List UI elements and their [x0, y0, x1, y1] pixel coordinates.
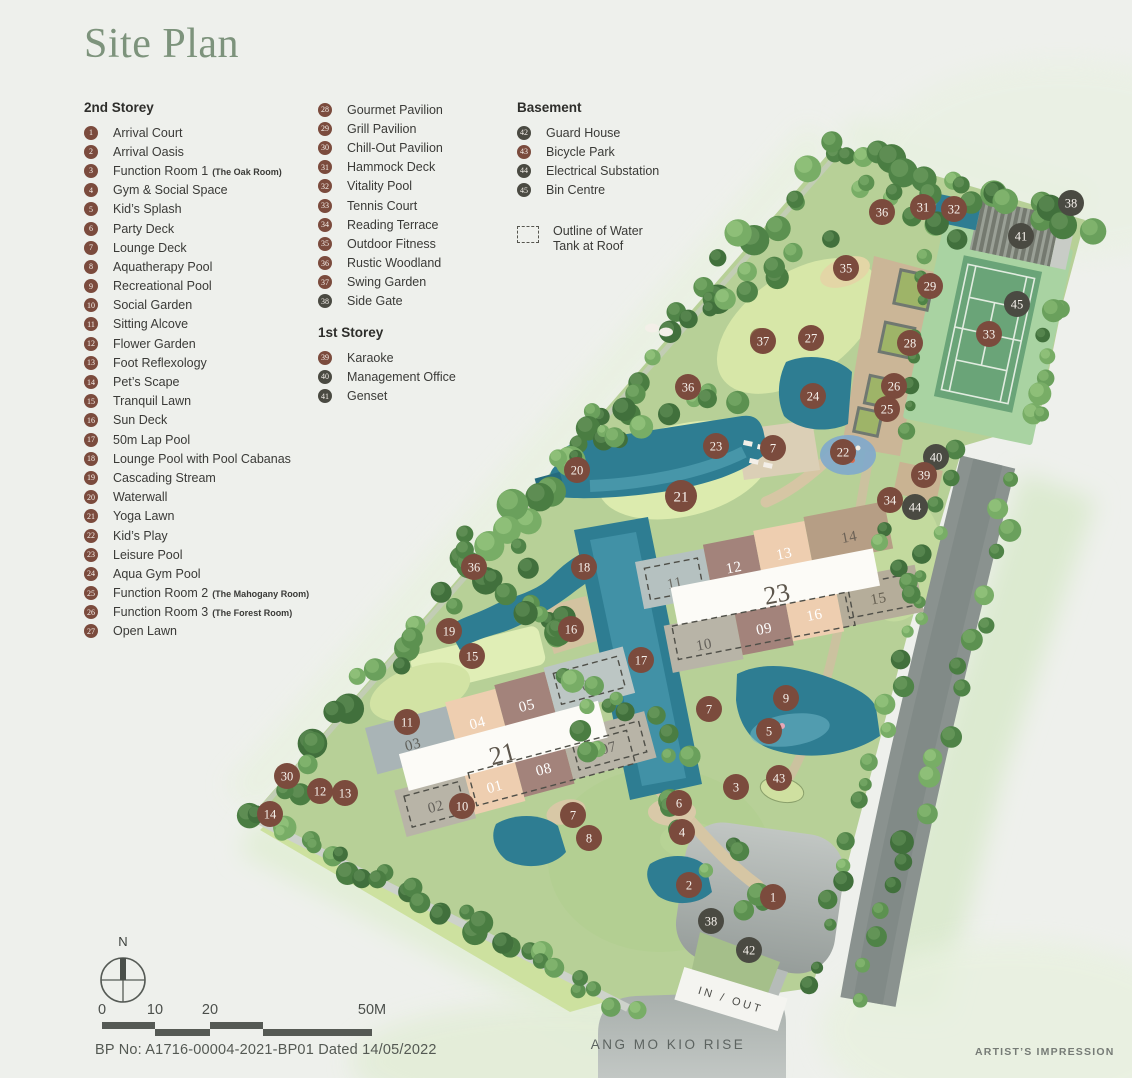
map-marker-number: 26	[888, 379, 901, 393]
map-marker-number: 12	[314, 784, 327, 798]
legend-item: 9 Recreational Pool	[84, 277, 309, 296]
stack-number: 10	[695, 636, 714, 655]
map-marker-number: 2	[686, 878, 692, 892]
legend-item: 36 Rustic Woodland	[318, 254, 456, 273]
legend-item: 30 Chill-Out Pavilion	[318, 138, 456, 157]
legend-item-label: Function Room 1(The Oak Room)	[113, 164, 282, 178]
stack-number: 16	[805, 606, 824, 625]
map-marker-number: 6	[676, 796, 682, 810]
legend-item-label: Sun Deck	[113, 413, 167, 427]
map-marker-number: 29	[924, 279, 937, 293]
legend-item-number: 10	[84, 298, 98, 312]
legend-item-label: Leisure Pool	[113, 548, 183, 562]
legend-column-1: 2nd Storey 1 Arrival Court 2 Arrival Oas…	[84, 100, 309, 641]
legend-item-number: 42	[517, 126, 531, 140]
legend-item-label: Karaoke	[347, 351, 394, 365]
map-marker-number: 13	[339, 786, 352, 800]
legend-item-label: Tennis Court	[347, 199, 417, 213]
map-marker-number: 39	[918, 468, 931, 482]
map-marker-number: 42	[743, 943, 756, 957]
map-marker-number: 38	[1065, 196, 1078, 210]
map-marker-number: 30	[281, 769, 294, 783]
water-tank-note: Outline of WaterTank at Roof	[517, 224, 659, 254]
legend-item: 8 Aquatherapy Pool	[84, 257, 309, 276]
legend-item-number: 12	[84, 337, 98, 351]
legend-item-label: Lounge Deck	[113, 241, 187, 255]
legend-item: 26 Function Room 3(The Forest Room)	[84, 603, 309, 622]
map-marker-number: 20	[571, 463, 584, 477]
legend-item-label: Gourmet Pavilion	[347, 103, 443, 117]
map-marker-number: 7	[706, 702, 712, 716]
legend-item-number: 23	[84, 548, 98, 562]
scale-label: 10	[147, 1002, 163, 1018]
legend-item: 12 Flower Garden	[84, 334, 309, 353]
legend-item-number: 6	[84, 222, 98, 236]
legend-item-number: 3	[84, 164, 98, 178]
legend-heading: Basement	[517, 100, 659, 115]
legend-item-number: 27	[84, 624, 98, 638]
legend-item-number: 38	[318, 294, 332, 308]
artists-impression-note: ARTIST’S IMPRESSION	[975, 1046, 1114, 1058]
map-marker-number: 41	[1015, 229, 1028, 243]
bp-number: BP No: A1716-00004-2021-BP01 Dated 14/05…	[95, 1042, 437, 1058]
legend-item-number: 14	[84, 375, 98, 389]
legend-item-label: Management Office	[347, 370, 456, 384]
legend-item-label: Arrival Oasis	[113, 145, 184, 159]
legend-item-number: 9	[84, 279, 98, 293]
scale-label: 50M	[358, 1002, 386, 1018]
legend-item: 23 Leisure Pool	[84, 545, 309, 564]
legend-item: 40 Management Office	[318, 367, 456, 386]
legend-item-number: 19	[84, 471, 98, 485]
legend-item-label: Hammock Deck	[347, 160, 435, 174]
legend-item: 18 Lounge Pool with Pool Cabanas	[84, 449, 309, 468]
legend-item: 11 Sitting Alcove	[84, 315, 309, 334]
legend-item: 44 Electrical Substation	[517, 161, 659, 180]
map-marker-number: 15	[466, 649, 479, 663]
map-marker-number: 21	[674, 489, 689, 505]
legend-item-label: Rustic Woodland	[347, 256, 441, 270]
map-marker-number: 22	[837, 445, 850, 459]
legend-list: 39 Karaoke 40 Management Office 41 Gense…	[318, 348, 456, 406]
stack-number: 13	[775, 545, 794, 564]
legend-item-label: Lounge Pool with Pool Cabanas	[113, 452, 291, 466]
dashed-outline-swatch	[517, 226, 539, 243]
legend-item: 7 Lounge Deck	[84, 238, 309, 257]
legend-item-number: 5	[84, 202, 98, 216]
legend-item: 37 Swing Garden	[318, 273, 456, 292]
legend-item-number: 43	[517, 145, 531, 159]
legend-item-label: Recreational Pool	[113, 279, 212, 293]
legend-item-label: Electrical Substation	[546, 164, 659, 178]
legend-item-label: Function Room 3(The Forest Room)	[113, 605, 292, 619]
legend-item: 2 Arrival Oasis	[84, 142, 309, 161]
legend-item-number: 8	[84, 260, 98, 274]
map-marker-number: 37	[757, 334, 770, 348]
legend-item-label: Cascading Stream	[113, 471, 216, 485]
legend-item: 24 Aqua Gym Pool	[84, 564, 309, 583]
map-marker-number: 17	[635, 653, 648, 667]
map-marker-number: 33	[983, 327, 996, 341]
legend-item-label: Guard House	[546, 126, 620, 140]
map-marker-number: 36	[682, 380, 695, 394]
map-marker-number: 10	[456, 799, 469, 813]
stack-number: 14	[840, 528, 859, 547]
legend-item-number: 22	[84, 529, 98, 543]
legend-item-number: 4	[84, 183, 98, 197]
legend-item-label: Vitality Pool	[347, 179, 412, 193]
legend-item: 27 Open Lawn	[84, 622, 309, 641]
legend-item-label: Grill Pavilion	[347, 122, 416, 136]
legend-item-label: Social Garden	[113, 298, 192, 312]
legend-item: 34 Reading Terrace	[318, 215, 456, 234]
map-marker-number: 8	[586, 831, 592, 845]
legend-column-3: Basement 42 Guard House 43 Bicycle Park …	[517, 100, 659, 254]
map-marker-number: 18	[578, 560, 591, 574]
legend-item-number: 24	[84, 567, 98, 581]
map-marker-number: 35	[840, 261, 853, 275]
map-marker-number: 14	[264, 807, 277, 821]
legend-item: 29 Grill Pavilion	[318, 119, 456, 138]
map-marker-number: 28	[904, 336, 917, 350]
legend-item: 28 Gourmet Pavilion	[318, 100, 456, 119]
map-marker-number: 32	[948, 202, 961, 216]
legend-item-number: 26	[84, 605, 98, 619]
legend-item: 1 Arrival Court	[84, 123, 309, 142]
scale-segment	[102, 1022, 155, 1029]
map-marker-number: 24	[807, 389, 820, 403]
scale-segment	[210, 1022, 263, 1029]
legend-item-label: Sitting Alcove	[113, 317, 188, 331]
legend-item-number: 41	[318, 389, 332, 403]
stack-number: 15	[869, 590, 888, 609]
map-marker-number: 7	[770, 441, 776, 455]
legend-item-label: Kid’s Splash	[113, 202, 182, 216]
compass-north-label: N	[118, 934, 127, 949]
legend-item-label: Tranquil Lawn	[113, 394, 191, 408]
legend-item: 35 Outdoor Fitness	[318, 234, 456, 253]
legend-item-label: Genset	[347, 389, 387, 403]
legend-item-label: Side Gate	[347, 294, 403, 308]
legend-item: 42 Guard House	[517, 123, 659, 142]
legend-item-number: 18	[84, 452, 98, 466]
legend-item-number: 36	[318, 256, 332, 270]
legend-item-number: 31	[318, 160, 332, 174]
legend-item: 5 Kid’s Splash	[84, 200, 309, 219]
scale-label: 0	[98, 1002, 106, 1018]
legend-item: 32 Vitality Pool	[318, 177, 456, 196]
legend-item-number: 30	[318, 141, 332, 155]
legend-item-number: 35	[318, 237, 332, 251]
legend-item: 41 Genset	[318, 386, 456, 405]
legend-item-label: Function Room 2(The Mahogany Room)	[113, 586, 309, 600]
legend-item-label: Pet’s Scape	[113, 375, 179, 389]
legend-item-label: Waterwall	[113, 490, 167, 504]
legend-item: 25 Function Room 2(The Mahogany Room)	[84, 584, 309, 603]
map-marker-number: 25	[881, 402, 894, 416]
map-marker-number: 7	[570, 808, 576, 822]
legend-item-label: 50m Lap Pool	[113, 433, 190, 447]
map-marker-number: 43	[773, 771, 786, 785]
legend-item: 38 Side Gate	[318, 292, 456, 311]
legend-item-label: Yoga Lawn	[113, 509, 174, 523]
legend-item-number: 40	[318, 370, 332, 384]
legend-item: 31 Hammock Deck	[318, 158, 456, 177]
map-marker-number: 45	[1011, 297, 1024, 311]
legend-item-number: 13	[84, 356, 98, 370]
legend-item-label: Bin Centre	[546, 183, 605, 197]
legend-item-number: 33	[318, 199, 332, 213]
legend-item-number: 17	[84, 433, 98, 447]
legend-item: 33 Tennis Court	[318, 196, 456, 215]
legend-item-label: Bicycle Park	[546, 145, 615, 159]
legend-item: 10 Social Garden	[84, 296, 309, 315]
legend-item: 3 Function Room 1(The Oak Room)	[84, 161, 309, 180]
legend-heading: 1st Storey	[318, 325, 456, 340]
legend-list: 28 Gourmet Pavilion 29 Grill Pavilion 30…	[318, 100, 456, 311]
legend-item-number: 28	[318, 103, 332, 117]
legend-item-number: 25	[84, 586, 98, 600]
legend-item: 16 Sun Deck	[84, 411, 309, 430]
map-marker-number: 3	[733, 780, 739, 794]
map-marker-number: 19	[443, 624, 456, 638]
legend-item-number: 44	[517, 164, 531, 178]
legend-item: 43 Bicycle Park	[517, 142, 659, 161]
legend-item-number: 16	[84, 413, 98, 427]
legend-item-number: 32	[318, 179, 332, 193]
legend-item-number: 29	[318, 122, 332, 136]
legend-item-label: Flower Garden	[113, 337, 196, 351]
legend-item-number: 11	[84, 317, 98, 331]
legend-heading: 2nd Storey	[84, 100, 309, 115]
legend-item-number: 21	[84, 509, 98, 523]
map-marker-number: 9	[783, 691, 789, 705]
legend-item-label: Aquatherapy Pool	[113, 260, 212, 274]
legend-item-label: Outdoor Fitness	[347, 237, 436, 251]
map-marker-number: 31	[917, 200, 930, 214]
scale-segment	[155, 1029, 210, 1036]
legend-item-number: 45	[517, 183, 531, 197]
map-marker-number: 23	[710, 439, 723, 453]
legend-item-number: 20	[84, 490, 98, 504]
map-marker-number: 36	[468, 560, 481, 574]
map-marker-number: 34	[884, 493, 897, 507]
compass-needle	[120, 958, 126, 980]
scale-label: 20	[202, 1002, 218, 1018]
map-marker-number: 1	[770, 890, 776, 904]
legend-item-number: 34	[318, 218, 332, 232]
legend-item-number: 7	[84, 241, 98, 255]
legend-item-label: Arrival Court	[113, 126, 182, 140]
legend-item-number: 15	[84, 394, 98, 408]
legend-item: 15 Tranquil Lawn	[84, 392, 309, 411]
map-marker-number: 5	[766, 724, 772, 738]
legend-item-label: Chill-Out Pavilion	[347, 141, 443, 155]
legend-item-label: Aqua Gym Pool	[113, 567, 201, 581]
scale-bar: 0 10 20 50M	[84, 1002, 404, 1044]
legend-item-label: Reading Terrace	[347, 218, 439, 232]
block-number: 23	[761, 577, 792, 610]
legend-item-label: Swing Garden	[347, 275, 426, 289]
compass: N	[88, 932, 158, 1008]
map-marker-number: 38	[705, 914, 718, 928]
legend-item: 39 Karaoke	[318, 348, 456, 367]
legend-item: 13 Foot Reflexology	[84, 353, 309, 372]
legend-item: 45 Bin Centre	[517, 181, 659, 200]
stack-number: 09	[755, 620, 774, 639]
map-marker-number: 4	[679, 825, 686, 839]
legend-item-number: 39	[318, 351, 332, 365]
legend-list: 1 Arrival Court 2 Arrival Oasis 3 Functi…	[84, 123, 309, 641]
legend-item-label: Party Deck	[113, 222, 174, 236]
legend-item-number: 1	[84, 126, 98, 140]
legend-item-number: 2	[84, 145, 98, 159]
legend-item: 14 Pet’s Scape	[84, 372, 309, 391]
legend-item: 19 Cascading Stream	[84, 468, 309, 487]
legend-item-number: 37	[318, 275, 332, 289]
page-title: Site Plan	[84, 20, 239, 68]
legend-item-label: Foot Reflexology	[113, 356, 207, 370]
legend-item: 22 Kid’s Play	[84, 526, 309, 545]
map-marker-number: 40	[930, 450, 943, 464]
legend-item: 17 50m Lap Pool	[84, 430, 309, 449]
road-label: ANG MO KIO RISE	[591, 1037, 746, 1052]
legend-item: 20 Waterwall	[84, 488, 309, 507]
legend-item: 4 Gym & Social Space	[84, 181, 309, 200]
legend-item-label: Kid’s Play	[113, 529, 168, 543]
legend-column-2: 28 Gourmet Pavilion 29 Grill Pavilion 30…	[318, 100, 456, 406]
map-marker-number: 11	[401, 715, 413, 729]
legend-item: 6 Party Deck	[84, 219, 309, 238]
map-marker-number: 44	[909, 500, 922, 514]
map-marker-number: 27	[805, 331, 818, 345]
legend-list: 42 Guard House 43 Bicycle Park 44 Electr…	[517, 123, 659, 200]
map-marker-number: 36	[876, 205, 889, 219]
scale-segment	[263, 1029, 372, 1036]
legend-item-label: Open Lawn	[113, 624, 177, 638]
map-marker-number: 16	[565, 622, 578, 636]
legend-item: 21 Yoga Lawn	[84, 507, 309, 526]
legend-item-label: Gym & Social Space	[113, 183, 228, 197]
